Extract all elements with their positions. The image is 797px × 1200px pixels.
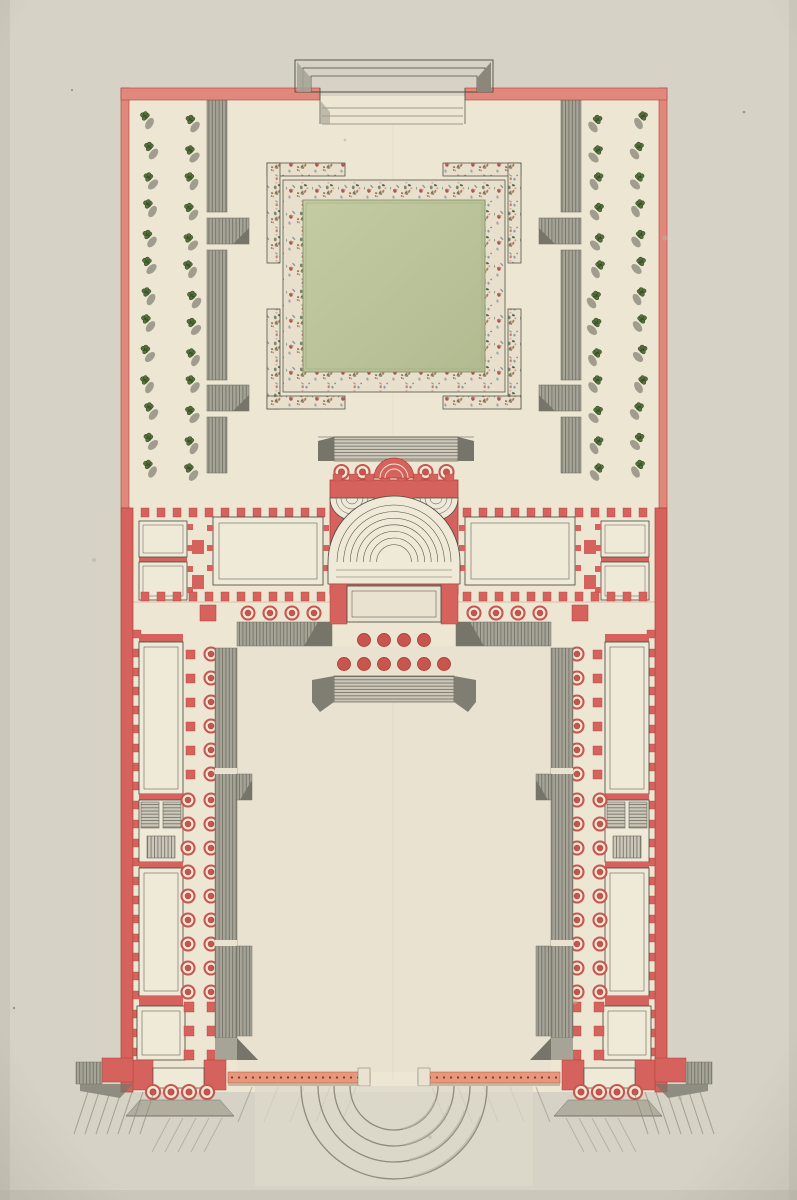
scanned-plan-sheet	[0, 0, 797, 1200]
paper-texture-overlay	[0, 0, 797, 1200]
plan-drawing	[0, 0, 797, 1200]
